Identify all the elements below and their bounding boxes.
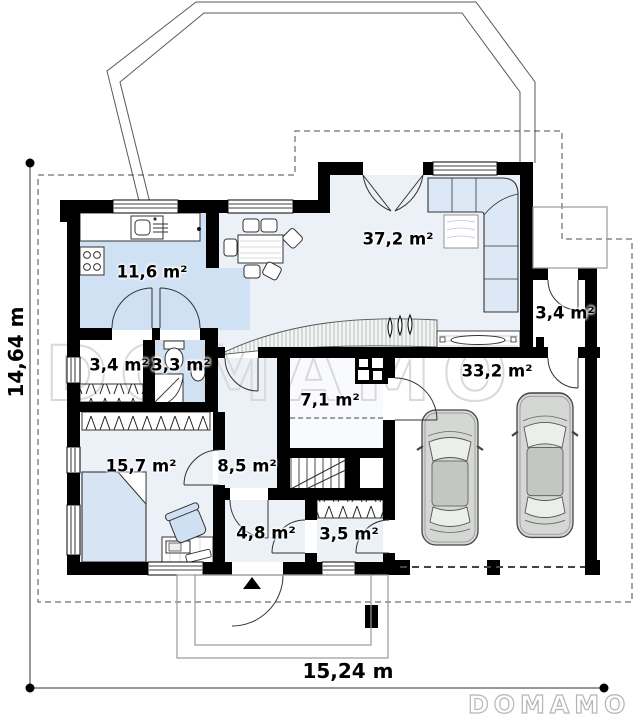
brand-logo: DOMAMO	[468, 690, 618, 719]
rug-icon	[444, 215, 478, 248]
room-label-living-room: 37,2 m²	[363, 230, 434, 249]
window-icon	[67, 447, 80, 473]
window-icon	[113, 200, 178, 213]
side-porch	[533, 207, 607, 268]
room-label-bathroom: 3,3 m²	[151, 356, 210, 375]
window-icon	[67, 505, 80, 555]
floor-plan-canvas: DOMAMO	[0, 0, 640, 722]
stove-icon	[80, 247, 104, 275]
counter-dot	[197, 227, 201, 231]
window-icon	[228, 200, 293, 213]
front-porch-inner	[195, 575, 371, 645]
window-icon	[67, 357, 80, 383]
room-label-bedroom: 15,7 m²	[106, 457, 177, 476]
desk-icon	[162, 537, 213, 564]
door-arc-vestibule-garage	[548, 358, 578, 388]
kitchen-counter	[80, 213, 200, 241]
window-icon	[322, 562, 355, 575]
room-label-kitchen: 11,6 m²	[117, 263, 188, 282]
room-label-vestibule: 3,4 m²	[535, 304, 594, 323]
car-icon-left	[417, 410, 483, 545]
room-label-hall: 8,5 m²	[217, 457, 276, 476]
room-label-garage: 33,2 m²	[462, 362, 533, 381]
room-label-wardrobe: 3,4 m²	[89, 356, 148, 375]
window-icon	[433, 162, 497, 175]
door-arc-main-entrance	[232, 575, 283, 626]
car-icon-right	[512, 393, 578, 537]
room-label-boiler-room: 7,1 m²	[300, 391, 359, 410]
dimension-height-label: 14,64 m	[4, 306, 28, 397]
room-label-entry: 4,8 m²	[236, 524, 295, 543]
entrance-arrow-icon	[243, 577, 261, 589]
bed-icon	[82, 472, 146, 562]
dimension-width-label: 15,24 m	[302, 659, 393, 683]
room-label-closet: 3,5 m²	[319, 525, 378, 544]
window-icon	[148, 562, 203, 575]
